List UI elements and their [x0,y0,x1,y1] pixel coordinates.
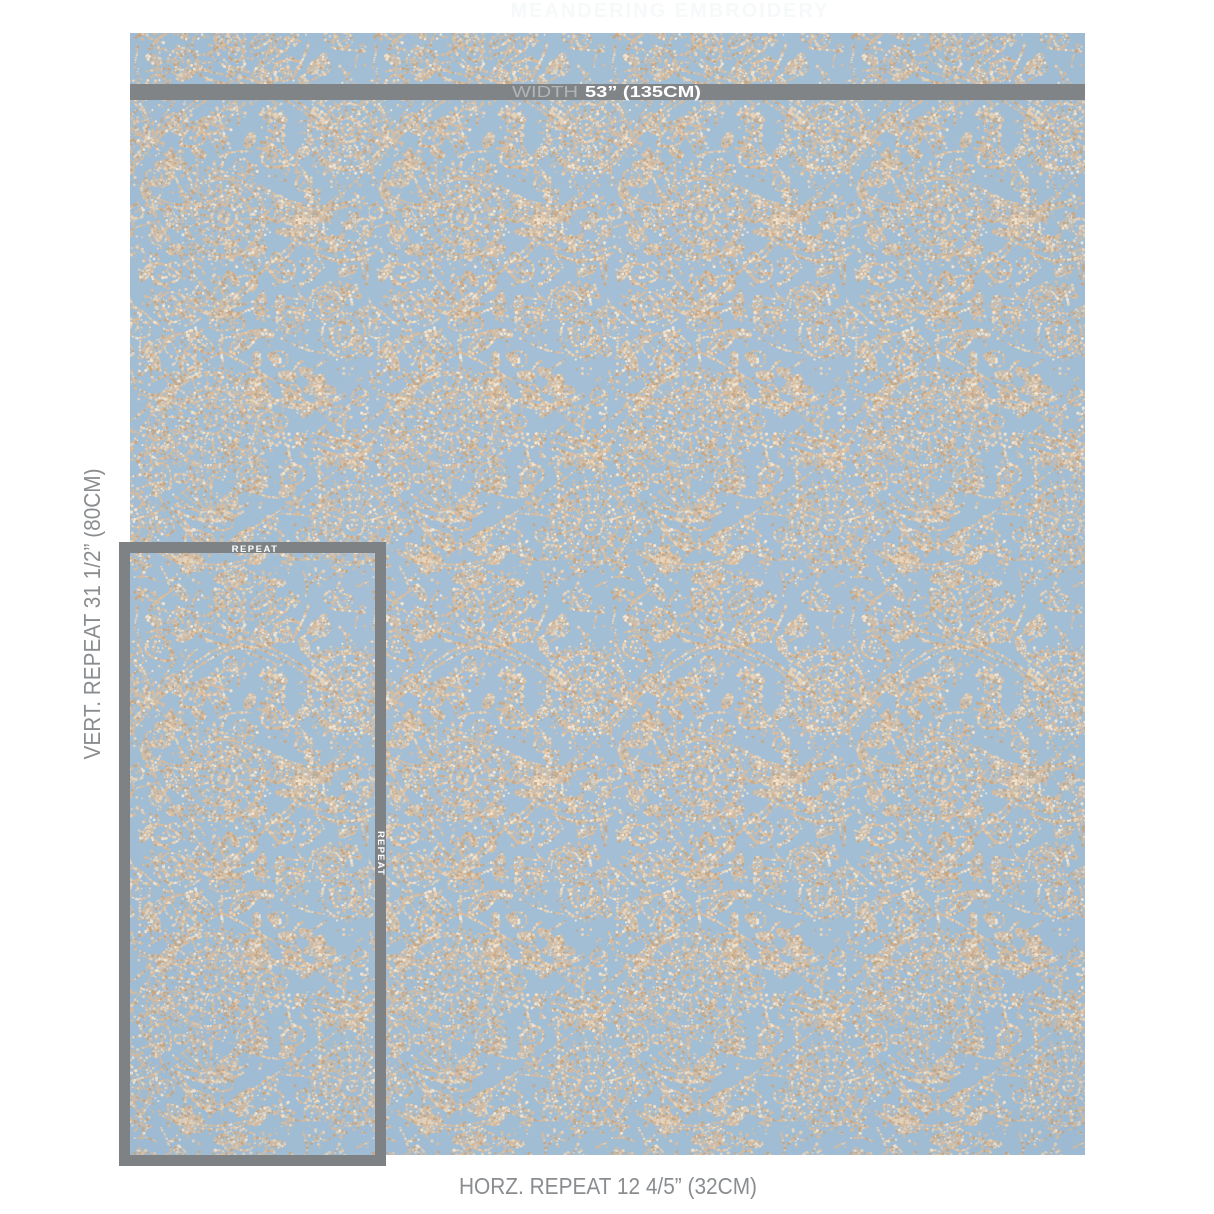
svg-text:REPEAT: REPEAT [232,544,279,554]
svg-text:VERT. REPEAT 31 1/2” (80CM): VERT. REPEAT 31 1/2” (80CM) [84,469,105,760]
svg-text:REPEAT: REPEAT [375,831,386,876]
svg-text:53” (135CM): 53” (135CM) [585,84,701,101]
svg-text:HORZ. REPEAT 12 4/5” (32CM): HORZ. REPEAT 12 4/5” (32CM) [459,1173,757,1199]
svg-text:WIDTH: WIDTH [512,84,578,101]
